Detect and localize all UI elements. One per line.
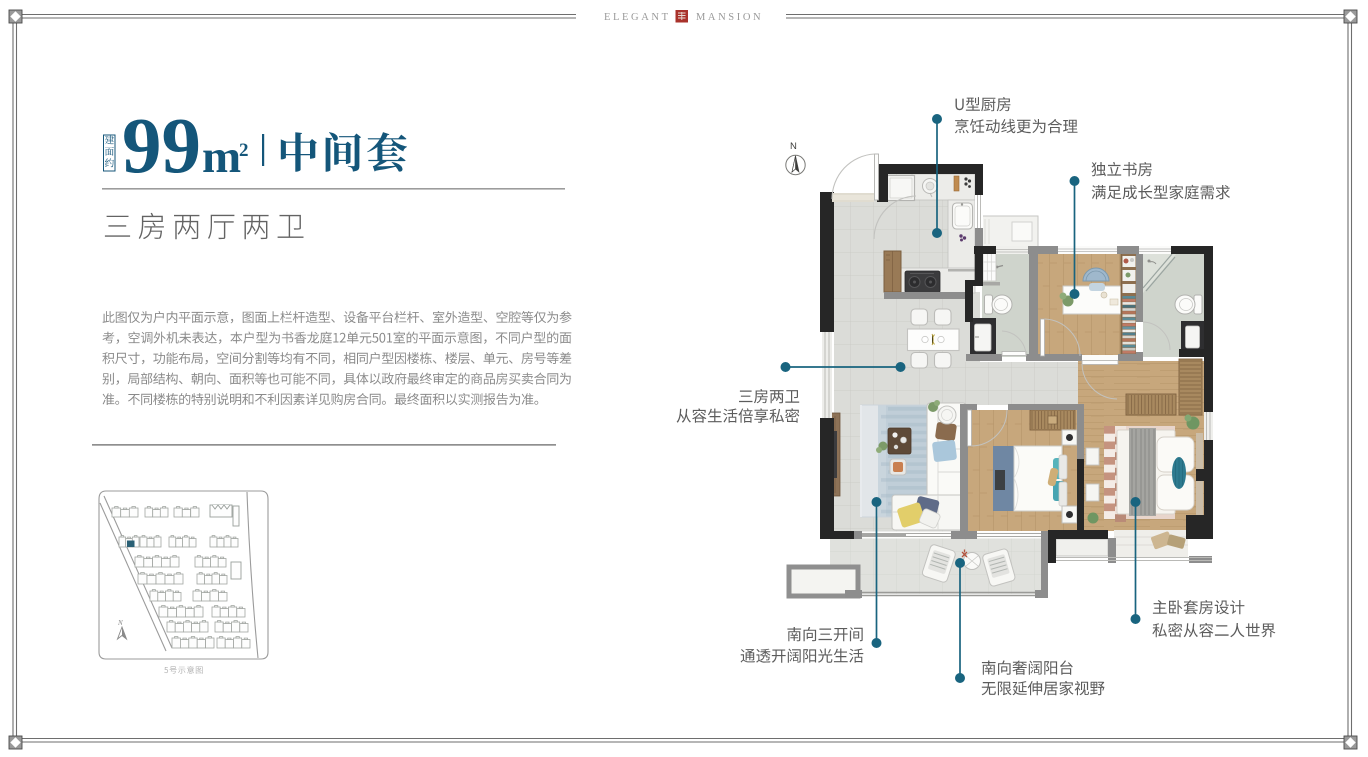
svg-text:N: N <box>790 141 797 152</box>
